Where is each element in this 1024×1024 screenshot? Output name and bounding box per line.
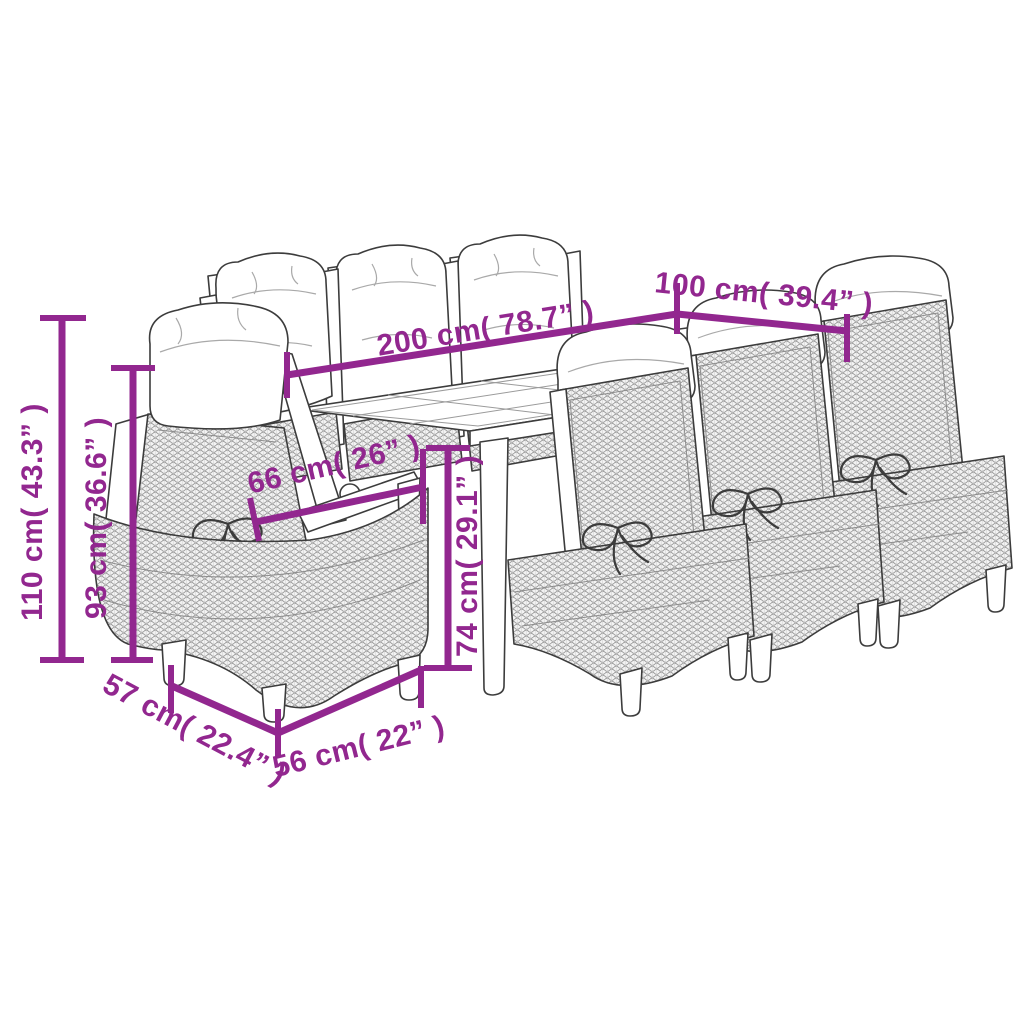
dimension-diagram-canvas: 110 cm( 43.3” ) 93 cm( 36.6” ) 200 cm( 7… [0,0,1024,1024]
table-leg-front-left [480,438,508,695]
dim-table-height: 74 cm( 29.1” ) [424,448,484,668]
dim-label-chair-height: 110 cm( 43.3” ) [16,403,49,621]
product-dimension-image: 110 cm( 43.3” ) 93 cm( 36.6” ) 200 cm( 7… [0,0,1024,1024]
dim-chair-height: 110 cm( 43.3” ) [16,318,86,660]
dim-label-table-height: 74 cm( 29.1” ) [451,455,484,657]
dim-label-chair-width: 56 cm( 22” ) [269,709,448,784]
dim-label-back-height: 93 cm( 36.6” ) [80,417,113,619]
